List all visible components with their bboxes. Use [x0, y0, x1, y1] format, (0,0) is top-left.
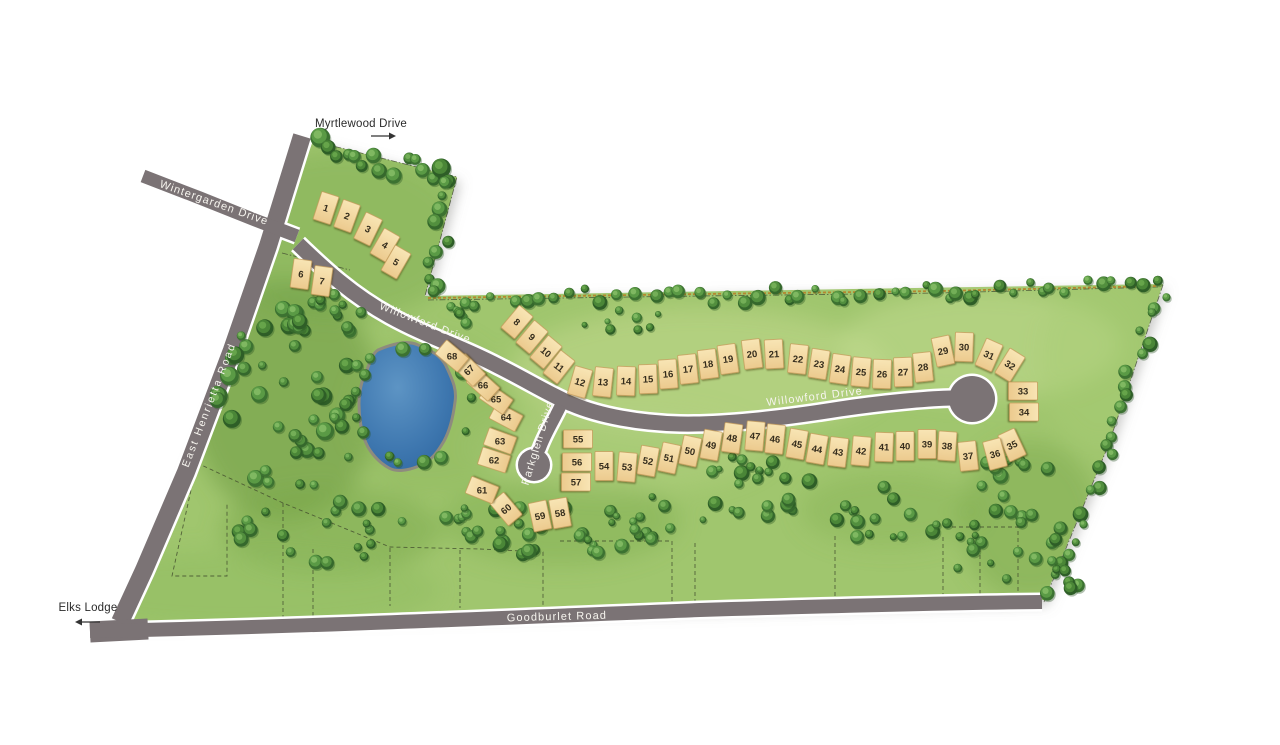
lot-48[interactable]: 48: [721, 422, 743, 453]
lot-28-number: 28: [917, 362, 929, 374]
lot-52-number: 52: [642, 456, 654, 469]
lot-61-number: 61: [477, 485, 488, 496]
lot-42-number: 42: [855, 446, 866, 458]
tree-icon: [1072, 538, 1081, 548]
lot-68-number: 68: [447, 351, 458, 362]
lot-38[interactable]: 38: [937, 431, 957, 461]
lot-21[interactable]: 21: [764, 339, 783, 369]
lot-13[interactable]: 13: [593, 367, 614, 398]
lot-33[interactable]: 33: [1009, 382, 1038, 400]
lot-20-number: 20: [746, 349, 758, 361]
lot-42[interactable]: 42: [851, 436, 871, 466]
lot-39-number: 39: [922, 439, 933, 450]
lot-46-number: 46: [769, 434, 781, 446]
lot-7[interactable]: 7: [311, 265, 333, 296]
lot-46[interactable]: 46: [765, 424, 786, 455]
lot-55[interactable]: 55: [564, 430, 593, 448]
lot-39[interactable]: 39: [918, 430, 936, 459]
lot-57-number: 57: [571, 477, 582, 488]
lot-40[interactable]: 40: [896, 432, 914, 461]
lot-41-number: 41: [878, 442, 890, 453]
lot-22-number: 22: [792, 354, 804, 366]
lot-47[interactable]: 47: [745, 421, 765, 451]
elks-lodge-label: Elks Lodge: [59, 602, 118, 614]
tree-icon: [1083, 276, 1094, 287]
lot-26-number: 26: [876, 369, 887, 380]
site-plan-map: 1234567891011121314151617181920212223242…: [0, 0, 1280, 745]
lot-49-number: 49: [705, 440, 717, 453]
lot-22[interactable]: 22: [788, 344, 809, 375]
tree-icon: [581, 285, 591, 295]
lot-48-number: 48: [726, 433, 738, 445]
tree-icon: [1079, 520, 1089, 530]
lot-37-number: 37: [962, 451, 974, 463]
myrtlewood-drive-label: Myrtlewood Drive: [315, 118, 407, 130]
wintergarden-drive-label: Wintergarden Drive: [158, 178, 270, 228]
lot-21-number: 21: [768, 349, 780, 361]
lot-18-number: 18: [702, 359, 714, 371]
lot-41[interactable]: 41: [874, 432, 893, 462]
willowford-cul-de-sac: [949, 376, 995, 422]
tree-icon: [1162, 293, 1171, 303]
lot-14[interactable]: 14: [616, 366, 635, 396]
lot-29-number: 29: [937, 345, 950, 358]
lot-34-number: 34: [1019, 407, 1030, 418]
tree-icon: [1059, 565, 1072, 578]
lot-54[interactable]: 54: [595, 452, 613, 481]
lot-30-number: 30: [958, 342, 969, 353]
lot-56-number: 56: [572, 457, 583, 468]
lot-24[interactable]: 24: [829, 353, 851, 384]
lot-33-number: 33: [1018, 386, 1029, 397]
lot-50-number: 50: [683, 445, 696, 458]
lot-59-number: 59: [534, 510, 547, 523]
lot-53-number: 53: [621, 462, 632, 474]
lot-17-number: 17: [682, 364, 694, 376]
lot-27-number: 27: [898, 367, 909, 378]
lot-43[interactable]: 43: [827, 437, 848, 468]
lot-47-number: 47: [749, 431, 760, 443]
lot-19-number: 19: [722, 354, 734, 366]
lot-15[interactable]: 15: [638, 364, 657, 394]
lot-16-number: 16: [662, 369, 673, 381]
lot-19[interactable]: 19: [717, 343, 739, 374]
lot-54-number: 54: [599, 461, 610, 472]
lot-57[interactable]: 57: [562, 473, 591, 491]
lot-17[interactable]: 17: [678, 354, 699, 385]
lot-28[interactable]: 28: [913, 352, 934, 383]
lot-63-number: 63: [495, 436, 506, 447]
myrtlewood-arrow-icon: [371, 133, 396, 140]
lot-14-number: 14: [620, 376, 632, 387]
lot-6[interactable]: 6: [290, 258, 312, 289]
lot-37[interactable]: 37: [958, 441, 979, 472]
lot-26[interactable]: 26: [872, 359, 891, 389]
lot-15-number: 15: [643, 374, 655, 385]
lot-66-number: 66: [478, 380, 489, 391]
lot-43-number: 43: [832, 447, 844, 459]
lot-53[interactable]: 53: [617, 452, 637, 482]
lot-25[interactable]: 25: [851, 357, 871, 387]
lot-40-number: 40: [900, 441, 911, 452]
lot-16[interactable]: 16: [658, 359, 678, 389]
lot-27[interactable]: 27: [893, 357, 912, 387]
tree-icon: [1107, 449, 1120, 462]
lot-18[interactable]: 18: [697, 349, 718, 380]
lot-38-number: 38: [941, 441, 952, 453]
lot-23-number: 23: [813, 359, 825, 372]
lot-55-number: 55: [573, 434, 584, 445]
lot-30[interactable]: 30: [954, 332, 973, 362]
lot-34[interactable]: 34: [1010, 403, 1039, 421]
tree-icon: [442, 236, 455, 250]
lot-25-number: 25: [855, 367, 867, 379]
lot-20[interactable]: 20: [741, 339, 762, 370]
site-plan: 1234567891011121314151617181920212223242…: [0, 0, 1280, 745]
lot-56[interactable]: 56: [563, 453, 592, 471]
lot-62-number: 62: [489, 455, 500, 466]
lot-13-number: 13: [597, 377, 609, 389]
lot-58-number: 58: [554, 508, 566, 521]
